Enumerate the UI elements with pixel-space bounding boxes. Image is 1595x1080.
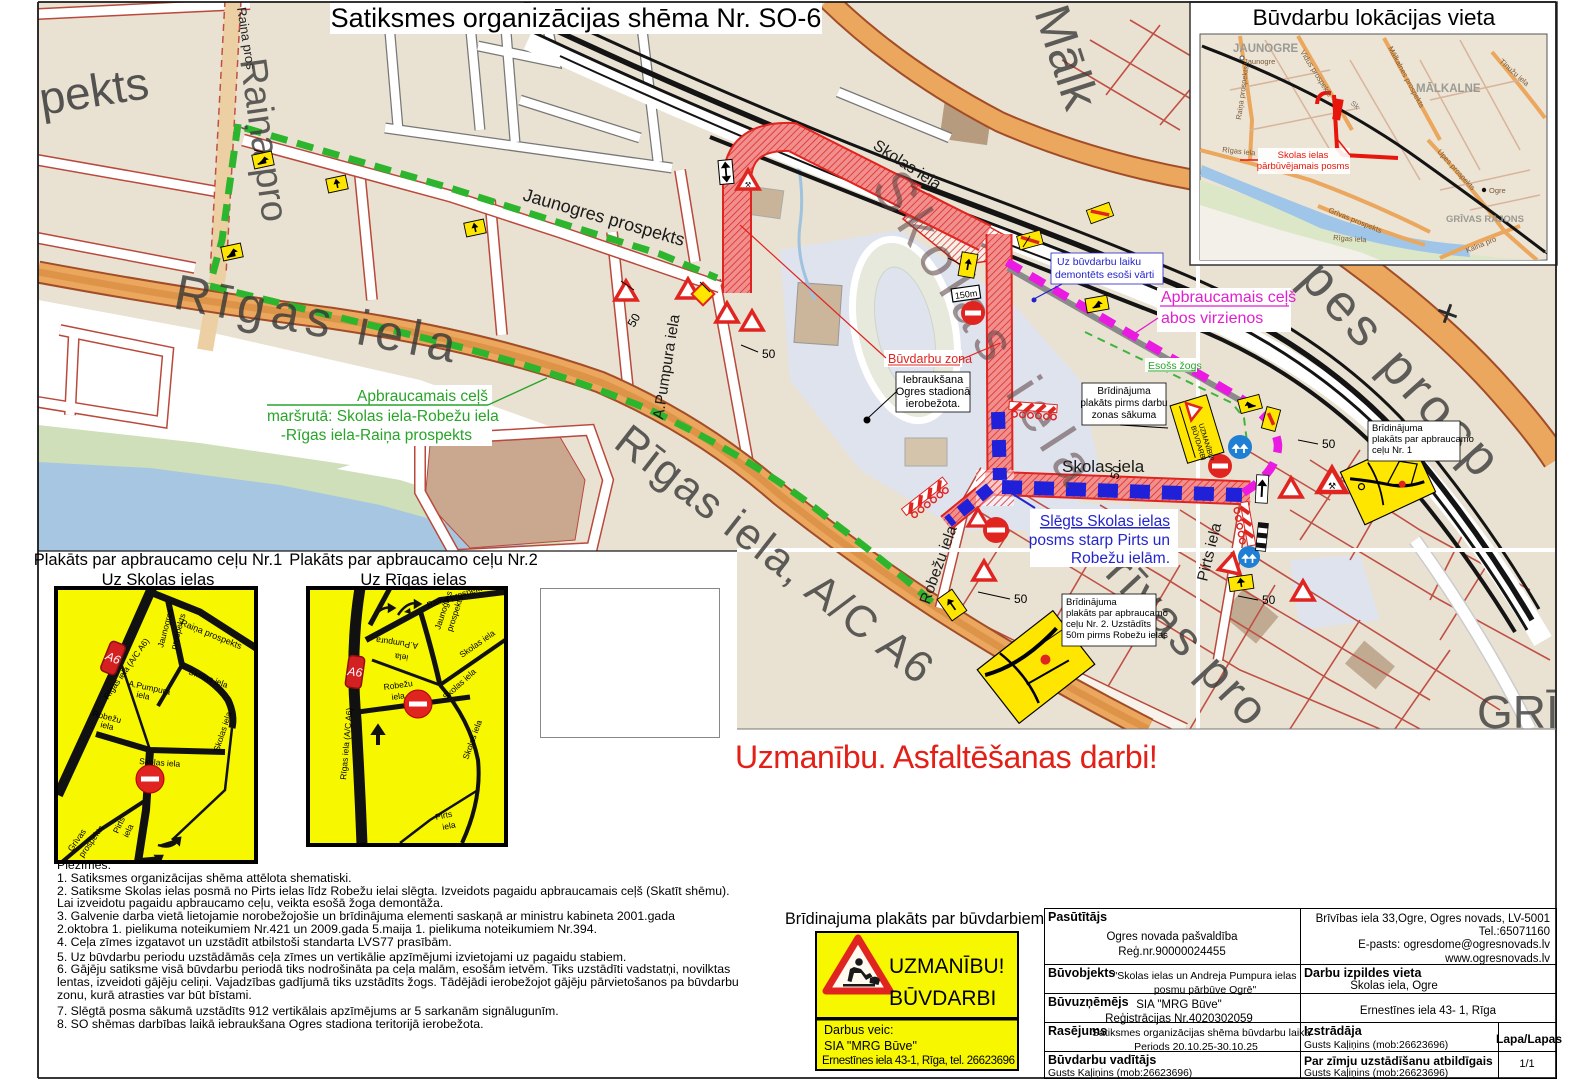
svg-text:-Rīgas iela-Raiņa prospekts: -Rīgas iela-Raiņa prospekts (281, 427, 473, 444)
svg-text:iela: iela (391, 690, 406, 702)
svg-text:Apbraucamais ceļš: Apbraucamais ceļš (1161, 289, 1296, 306)
svg-text:Ogres stadionā: Ogres stadionā (896, 386, 971, 398)
svg-text:iela: iela (394, 651, 409, 663)
svg-text:Brīdinājuma: Brīdinājuma (1097, 386, 1151, 397)
svg-text:abos virzienos: abos virzienos (1161, 310, 1263, 327)
svg-text:50: 50 (762, 347, 776, 361)
svg-text:posms starp Pirts un: posms starp Pirts un (1029, 532, 1170, 549)
svg-text:Brīdinājuma: Brīdinājuma (1066, 597, 1117, 608)
svg-text:ierobežota.: ierobežota. (906, 398, 960, 410)
svg-text:50m pirms Robežu ielas: 50m pirms Robežu ielas (1066, 630, 1168, 641)
svg-text:⚒: ⚒ (745, 181, 751, 189)
svg-text:50: 50 (1014, 592, 1028, 606)
svg-text:plakāts par apbraucamo: plakāts par apbraucamo (1372, 434, 1474, 445)
svg-text:MĀLKALNE: MĀLKALNE (1416, 83, 1481, 95)
svg-text:50: 50 (1322, 437, 1336, 451)
svg-text:Būvdarbu zona: Būvdarbu zona (888, 352, 972, 366)
svg-text:GRĪ: GRĪ (1477, 686, 1559, 738)
svg-text:Robežu ielām.: Robežu ielām. (1071, 550, 1170, 567)
svg-text:GRĪVAS RAJONS: GRĪVAS RAJONS (1446, 214, 1524, 225)
svg-text:Esošs žogs: Esošs žogs (1148, 360, 1202, 372)
svg-text:A6: A6 (346, 664, 364, 680)
svg-text:JAUNOGRE: JAUNOGRE (1233, 43, 1299, 55)
svg-text:Uz būvdarbu laiku: Uz būvdarbu laiku (1057, 256, 1141, 268)
svg-text:Iebraukšana: Iebraukšana (903, 374, 964, 386)
svg-text:Skolas ielas: Skolas ielas (1278, 150, 1329, 161)
svg-text:Brīdinājuma: Brīdinājuma (1372, 423, 1423, 434)
svg-text:ceļu Nr. 2. Uzstādīts: ceļu Nr. 2. Uzstādīts (1066, 619, 1151, 630)
svg-text:50: 50 (1262, 593, 1276, 607)
svg-text:zonas sākuma: zonas sākuma (1092, 410, 1157, 421)
svg-text:ceļu Nr. 1: ceļu Nr. 1 (1372, 445, 1412, 456)
svg-text:maršrutā: Skolas iela-Robežu i: maršrutā: Skolas iela-Robežu iela (267, 408, 499, 425)
svg-text:Jaunogre: Jaunogre (1244, 57, 1275, 66)
svg-text:plakāts par apbraucamo: plakāts par apbraucamo (1066, 608, 1168, 619)
svg-text:pārbūvējamais posms: pārbūvējamais posms (1257, 161, 1350, 172)
svg-text:demontēts esoši vārti: demontēts esoši vārti (1055, 269, 1154, 281)
svg-text:Būvdarbu lokācijas vieta: Būvdarbu lokācijas vieta (1253, 5, 1496, 30)
svg-text:Slēgts Skolas ielas: Slēgts Skolas ielas (1040, 513, 1170, 530)
svg-text:Skolas iela: Skolas iela (1062, 457, 1145, 476)
svg-text:Ogre: Ogre (1489, 186, 1506, 195)
svg-text:⚒: ⚒ (1328, 481, 1336, 491)
svg-text:Apbraucamais ceļš: Apbraucamais ceļš (357, 388, 488, 405)
svg-text:plakāts pirms darbu: plakāts pirms darbu (1080, 398, 1167, 409)
